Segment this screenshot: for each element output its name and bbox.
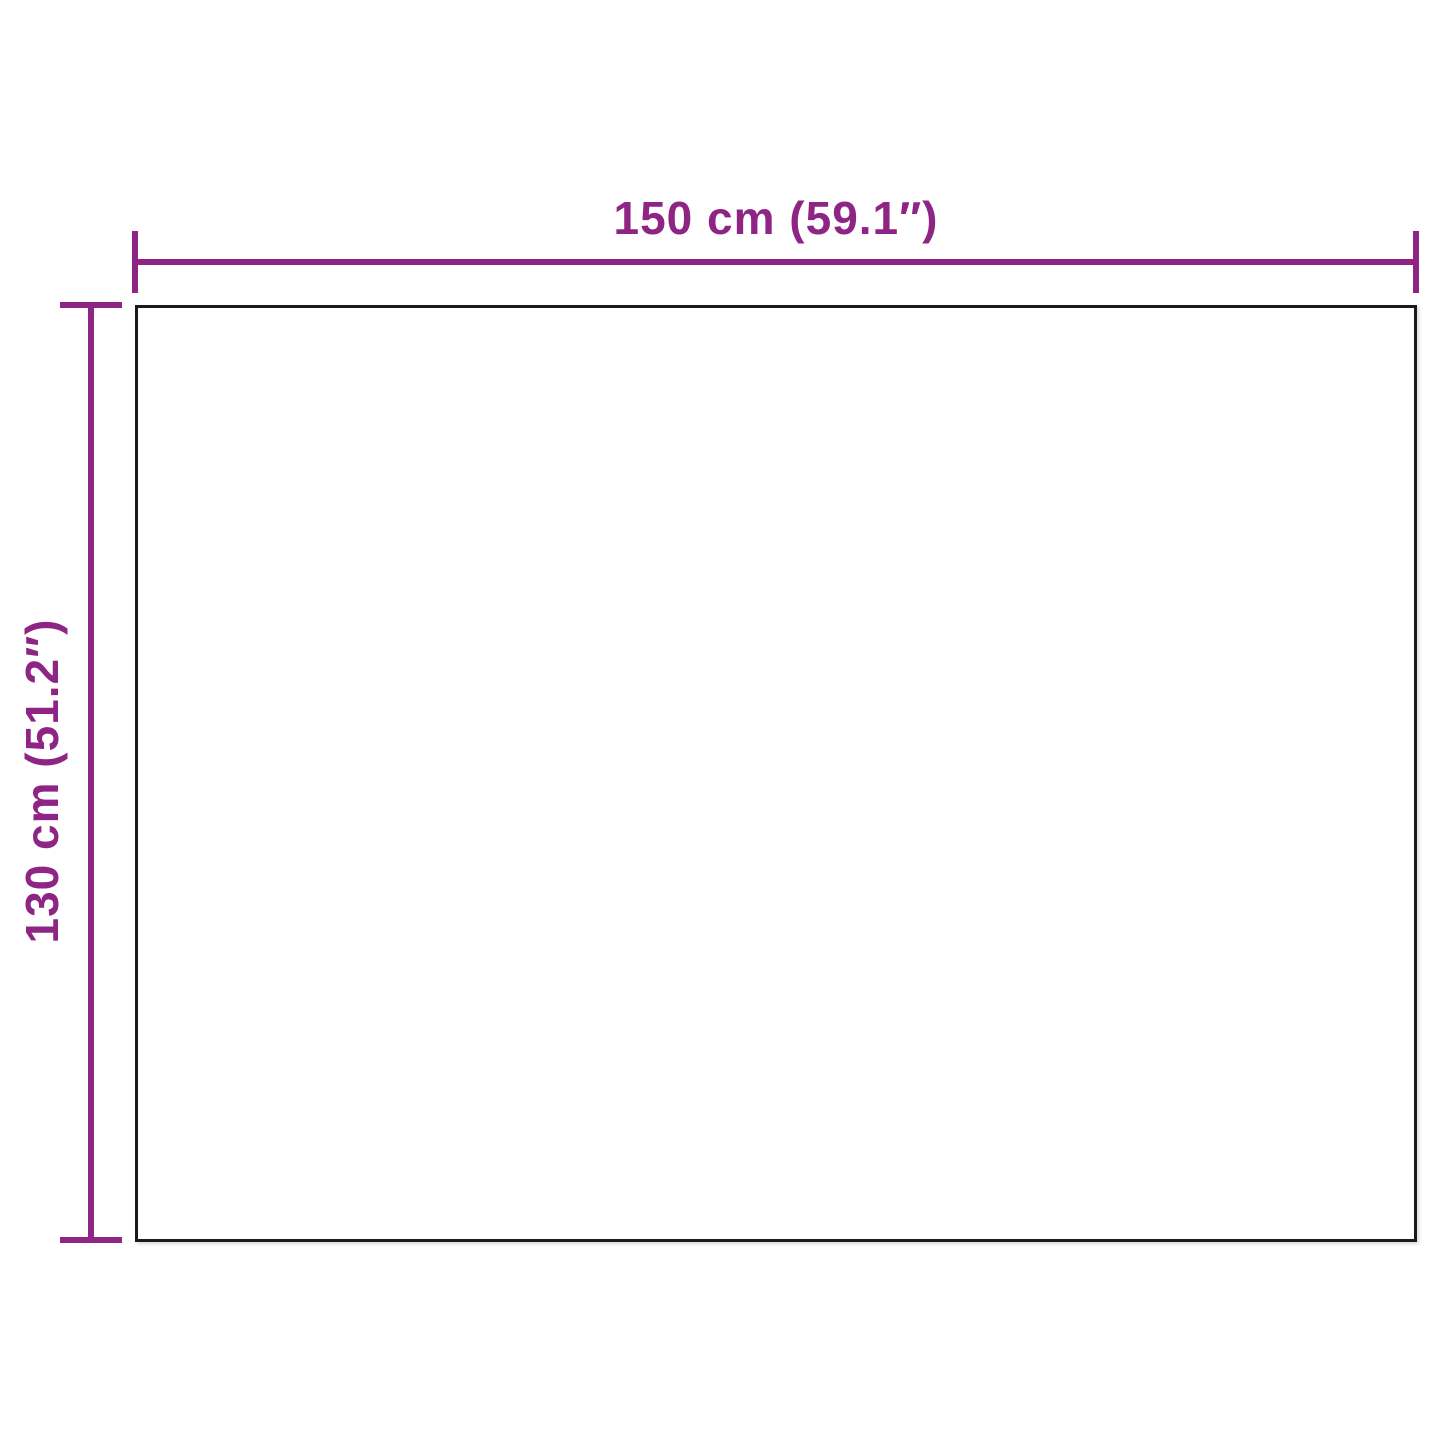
height-dimension-tick-bottom	[60, 1237, 122, 1243]
height-dimension-tick-top	[60, 302, 122, 308]
width-dimension-line	[135, 259, 1417, 265]
width-dimension-tick-left	[132, 231, 138, 293]
height-dimension-label: 130 cm (51.2″)	[19, 619, 65, 944]
dimension-diagram-canvas: 150 cm (59.1″) 130 cm (51.2″)	[0, 0, 1445, 1445]
height-dimension-line	[88, 305, 94, 1241]
width-dimension-label: 150 cm (59.1″)	[614, 195, 939, 241]
product-outline-rectangle	[135, 305, 1417, 1242]
width-dimension-tick-right	[1413, 231, 1419, 293]
